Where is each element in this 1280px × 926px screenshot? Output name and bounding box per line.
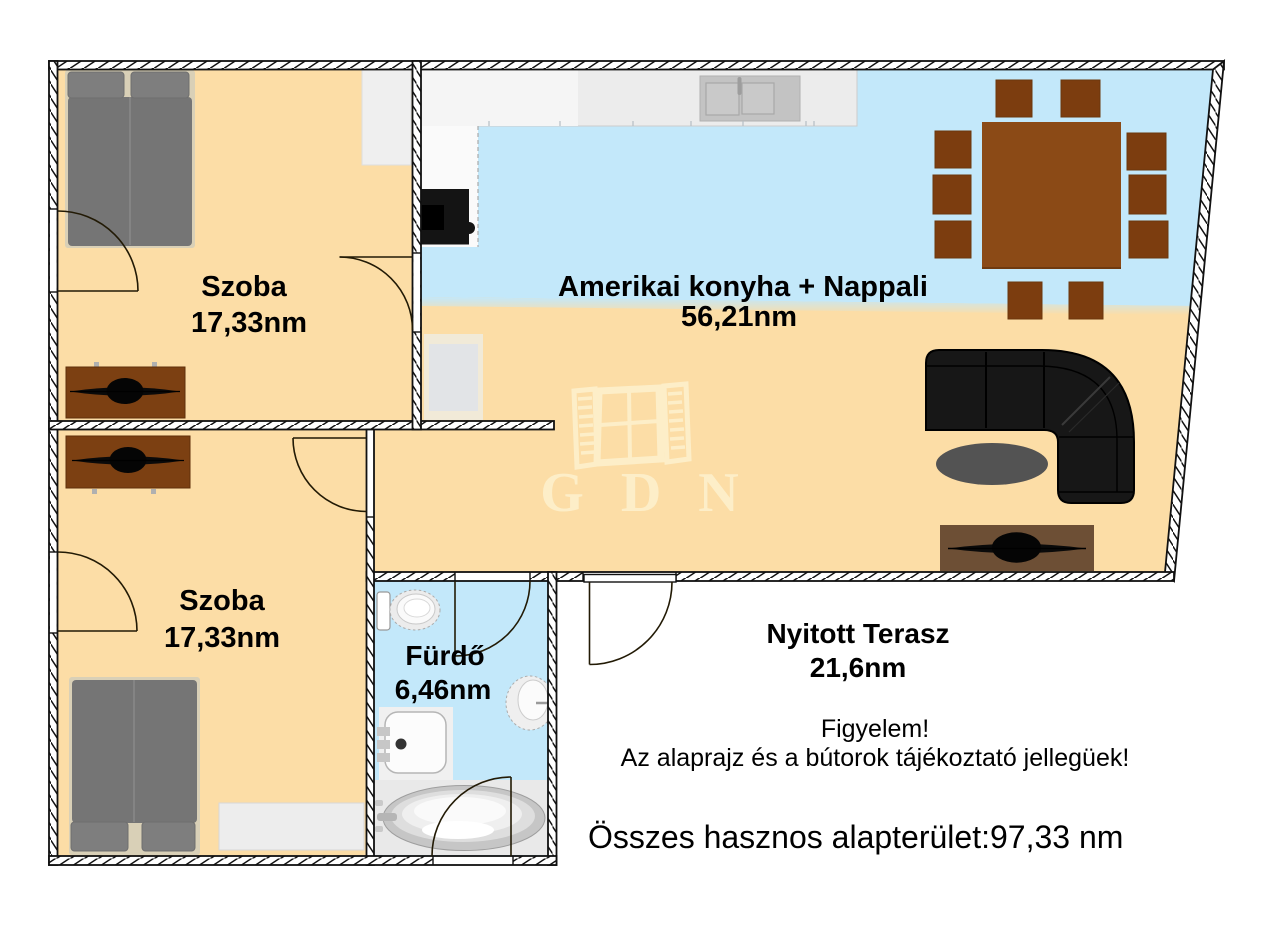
svg-text:GDN: GDN: [540, 462, 775, 524]
svg-text:6,46nm: 6,46nm: [395, 674, 492, 705]
svg-text:21,6nm: 21,6nm: [810, 652, 907, 683]
svg-text:Fürdő: Fürdő: [405, 640, 484, 671]
svg-text:Szoba: Szoba: [179, 585, 265, 617]
svg-text:Amerikai konyha + Nappali: Amerikai konyha + Nappali: [558, 271, 928, 303]
svg-text:17,33nm: 17,33nm: [191, 307, 307, 339]
svg-text:Nyitott Terasz: Nyitott Terasz: [766, 618, 949, 649]
svg-text:Az alaprajz és a bútorok tájék: Az alaprajz és a bútorok tájékoztató jel…: [621, 744, 1130, 772]
svg-text:56,21nm: 56,21nm: [681, 301, 797, 333]
svg-text:17,33nm: 17,33nm: [164, 622, 280, 654]
svg-text:Szoba: Szoba: [201, 271, 287, 303]
svg-text:Figyelem!: Figyelem!: [821, 715, 929, 743]
svg-text:Összes hasznos alapterület:97,: Összes hasznos alapterület:97,33 nm: [588, 819, 1123, 855]
